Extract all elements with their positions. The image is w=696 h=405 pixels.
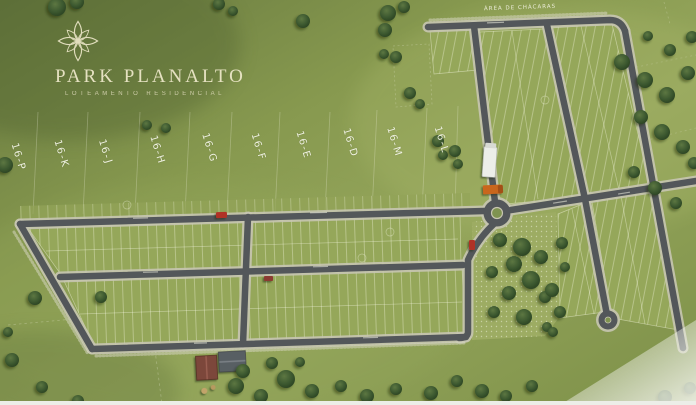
gray-car-middle-road bbox=[264, 276, 273, 281]
masterplan-canvas: PARK PLANALTO LOTEAMENTO RESIDENCIAL ÁRE… bbox=[0, 0, 696, 405]
red-car-main-road bbox=[216, 212, 227, 218]
red-car-side-road bbox=[469, 240, 475, 250]
cul-de-sac bbox=[599, 311, 618, 330]
roundabout bbox=[484, 200, 511, 227]
white-box-truck bbox=[482, 143, 497, 178]
site-plan-graphic bbox=[0, 0, 696, 405]
orange-truck bbox=[483, 184, 503, 194]
bottom-border-strip bbox=[0, 401, 696, 405]
red-roof-shed bbox=[196, 355, 218, 380]
